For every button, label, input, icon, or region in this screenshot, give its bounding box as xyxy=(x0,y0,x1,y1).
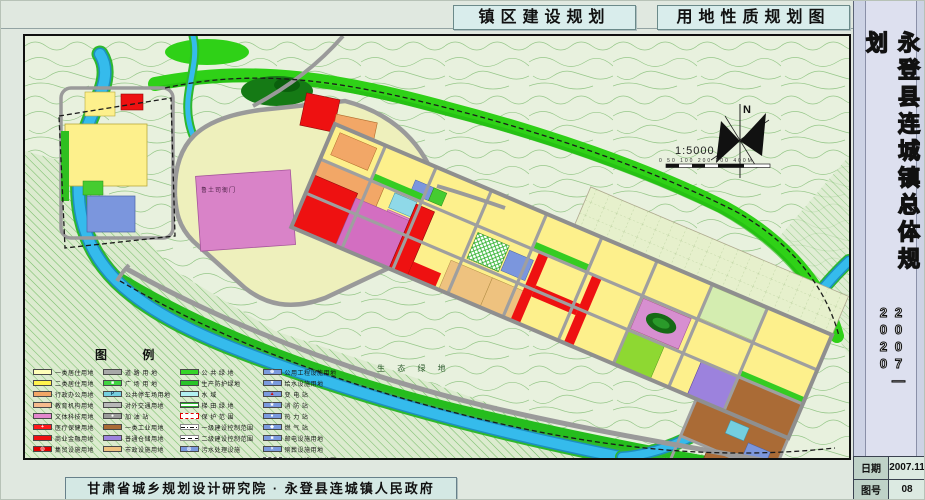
legend-label: 生产防护绿地 xyxy=(202,379,241,388)
legend-swatch xyxy=(180,380,199,386)
legend-label: 商业金融用地 xyxy=(55,434,94,443)
legend-item: +医疗保健用地 xyxy=(33,423,94,431)
title-left: 镇区建设规划 xyxy=(453,5,636,30)
legend-item: ●加 油 站 xyxy=(103,412,171,420)
sheet-number-value: 08 xyxy=(889,480,925,500)
legend-swatch xyxy=(33,391,52,397)
scale-tick-labels: 0 50 100 200 300 400M xyxy=(659,158,779,164)
legend-column: 一类居住用地二类居住用地行政办公用地教育机构用地文体科技用地+医疗保健用地商业金… xyxy=(33,368,94,460)
legend-item: ◆燃 气 站 xyxy=(263,423,337,431)
legend-swatch xyxy=(180,424,199,430)
legend-swatch: ▲ xyxy=(263,391,282,397)
legend-item: 水 域 xyxy=(180,390,254,398)
legend-item: 公 共 绿 地 xyxy=(180,368,254,376)
legend-item: 梯 田 绿 地 xyxy=(180,401,254,409)
legend-swatch xyxy=(180,402,199,408)
map-canvas: N 1:5000 0 50 100 200 300 400M 生 态 绿 地 鲁… xyxy=(23,34,851,460)
legend-label: 二级建设控制范围 xyxy=(202,434,254,443)
legend-swatch: ◆ xyxy=(263,424,282,430)
legend-label: 一类工业用地 xyxy=(125,423,164,432)
legend-item: 村庄建设用地范围 xyxy=(263,456,337,460)
legend-swatch: ● xyxy=(103,413,122,419)
legend-label: 对外交通用地 xyxy=(125,401,164,410)
legend-label: 教育机构用地 xyxy=(55,401,94,410)
legend-label: 道 路 用 地 xyxy=(125,368,158,377)
legend-item: ■邮电设施用地 xyxy=(263,434,337,442)
legend-swatch: + xyxy=(33,424,52,430)
legend-item: 教育机构用地 xyxy=(33,401,94,409)
legend-item: 保 护 范 围 xyxy=(180,412,254,420)
legend-label: 热 力 站 xyxy=(285,412,309,421)
legend-label: 水 域 xyxy=(202,390,217,399)
legend-swatch xyxy=(33,402,52,408)
legend-label: 加 油 站 xyxy=(125,412,149,421)
date-value: 2007.11 xyxy=(889,457,925,479)
legend-swatch: ★ xyxy=(263,402,282,408)
legend-item: ×殡葬设施用地 xyxy=(263,445,337,453)
legend-label: 二类居住用地 xyxy=(55,379,94,388)
legend-label: 集贸设施用地 xyxy=(55,445,94,454)
legend-label: 普通仓储用地 xyxy=(125,434,164,443)
legend-column: 道 路 用 地■广 场 用 地P公共停车场用地对外交通用地●加 油 站一类工业用… xyxy=(103,368,171,460)
legend-item: 生产防护绿地 xyxy=(180,379,254,387)
legend-label: 消 防 站 xyxy=(285,401,309,410)
legend-swatch xyxy=(33,413,52,419)
title-right: 用地性质规划图 xyxy=(657,5,850,30)
legend-label: 广 场 用 地 xyxy=(125,379,158,388)
legend-item: ●热 力 站 xyxy=(263,412,337,420)
legend-item: 道 路 用 地 xyxy=(103,368,171,376)
legend-swatch: ● xyxy=(263,413,282,419)
legend-swatch xyxy=(103,369,122,375)
sheet-stamp: 日期 2007.11 图号 08 xyxy=(853,456,925,500)
legend-label: 污水处理设施 xyxy=(202,445,241,454)
sheet-number-row: 图号 08 xyxy=(854,479,925,500)
legend-swatch: ■ xyxy=(103,380,122,386)
plan-title-vertical: 永登县连城镇总体规划 xyxy=(859,31,923,297)
legend-swatch xyxy=(33,435,52,441)
legend-label: 殡葬设施用地 xyxy=(285,445,324,454)
date-row: 日期 2007.11 xyxy=(854,457,925,479)
legend-item: 市政设施用地 xyxy=(103,445,171,453)
legend-swatch xyxy=(103,402,122,408)
legend-item: 二类居住用地 xyxy=(33,379,94,387)
legend-item: 对外交通用地 xyxy=(103,401,171,409)
legend-item: 普通仓储用地 xyxy=(103,434,171,442)
legend-item: 商业金融用地 xyxy=(33,434,94,442)
scale-ratio: 1:5000 xyxy=(675,145,715,157)
legend-label: 行政办公用地 xyxy=(55,390,94,399)
legend-swatch xyxy=(103,435,122,441)
legend-label: 公共停车场用地 xyxy=(125,390,171,399)
legend-column: 公 共 绿 地生产防护绿地水 域梯 田 绿 地保 护 范 围一级建设控制范围二级… xyxy=(180,368,254,460)
legend-columns: 一类居住用地二类居住用地行政办公用地教育机构用地文体科技用地+医疗保健用地商业金… xyxy=(33,368,325,460)
legend-label: 变 电 站 xyxy=(285,390,309,399)
legend-item: ◎污水处理设施 xyxy=(180,445,254,453)
legend-swatch xyxy=(103,446,122,452)
legend-label: 邮电设施用地 xyxy=(285,434,324,443)
legend-swatch: ◎ xyxy=(33,446,52,452)
legend-label: 燃 气 站 xyxy=(285,423,309,432)
heritage-site-label: 鲁土司衙门 xyxy=(201,185,236,194)
legend-swatch: ■ xyxy=(263,435,282,441)
legend-label: 市政设施用地 xyxy=(125,445,164,454)
plan-sheet: 镇区建设规划 用地性质规划图 xyxy=(0,0,925,500)
plan-period-vertical: 2007—2020 xyxy=(876,305,906,456)
north-label: N xyxy=(743,104,751,116)
legend-label: 医疗保健用地 xyxy=(55,423,94,432)
legend-swatch xyxy=(180,369,199,375)
legend-swatch xyxy=(33,369,52,375)
legend-item: ■广 场 用 地 xyxy=(103,379,171,387)
title-block: 永登县连城镇总体规划 2007—2020 xyxy=(853,1,925,456)
title-block-panel: 永登县连城镇总体规划 2007—2020 xyxy=(865,1,917,456)
legend-item: 一级建设控制范围 xyxy=(180,423,254,431)
legend-item: ⊕公用工程设施用地 xyxy=(263,368,337,376)
legend-label: 公用工程设施用地 xyxy=(285,368,337,377)
legend: 图 例 一类居住用地二类居住用地行政办公用地教育机构用地文体科技用地+医疗保健用… xyxy=(33,346,325,460)
legend-label: 村庄建设用地范围 xyxy=(285,456,337,461)
legend-label: 文体科技用地 xyxy=(55,412,94,421)
legend-swatch: P xyxy=(103,391,122,397)
legend-label: 梯 田 绿 地 xyxy=(202,401,235,410)
legend-label: 公 共 绿 地 xyxy=(202,368,235,377)
legend-item: ★消 防 站 xyxy=(263,401,337,409)
legend-title: 图 例 xyxy=(33,346,325,363)
legend-swatch xyxy=(180,391,199,397)
legend-item: ▲变 电 站 xyxy=(263,390,337,398)
legend-swatch: ⊕ xyxy=(263,369,282,375)
legend-label: 保 护 范 围 xyxy=(202,412,235,421)
legend-item: 文体科技用地 xyxy=(33,412,94,420)
legend-swatch: ▼ xyxy=(263,380,282,386)
legend-swatch xyxy=(180,435,199,441)
legend-label: 给水设施用地 xyxy=(285,379,324,388)
scale-bar xyxy=(666,164,770,168)
legend-label: 一级建设控制范围 xyxy=(202,423,254,432)
legend-label: 一类居住用地 xyxy=(55,368,94,377)
legend-column: ⊕公用工程设施用地▼给水设施用地▲变 电 站★消 防 站●热 力 站◆燃 气 站… xyxy=(263,368,337,460)
sheet-number-label: 图号 xyxy=(854,480,889,500)
legend-item: 一类居住用地 xyxy=(33,368,94,376)
legend-swatch xyxy=(263,457,282,460)
legend-swatch: × xyxy=(263,446,282,452)
legend-swatch xyxy=(103,424,122,430)
legend-item: 一类工业用地 xyxy=(103,423,171,431)
legend-item: P公共停车场用地 xyxy=(103,390,171,398)
legend-swatch xyxy=(33,380,52,386)
legend-item: 二级建设控制范围 xyxy=(180,434,254,442)
legend-item: ◎集贸设施用地 xyxy=(33,445,94,453)
legend-swatch: ◎ xyxy=(180,446,199,452)
legend-item: ▼给水设施用地 xyxy=(263,379,337,387)
legend-item: 行政办公用地 xyxy=(33,390,94,398)
attribution-bar: 甘肃省城乡规划设计研究院 · 永登县连城镇人民政府 xyxy=(65,477,457,500)
date-label: 日期 xyxy=(854,457,889,479)
legend-swatch xyxy=(180,413,199,419)
eco-green-label: 生 态 绿 地 xyxy=(377,363,451,374)
